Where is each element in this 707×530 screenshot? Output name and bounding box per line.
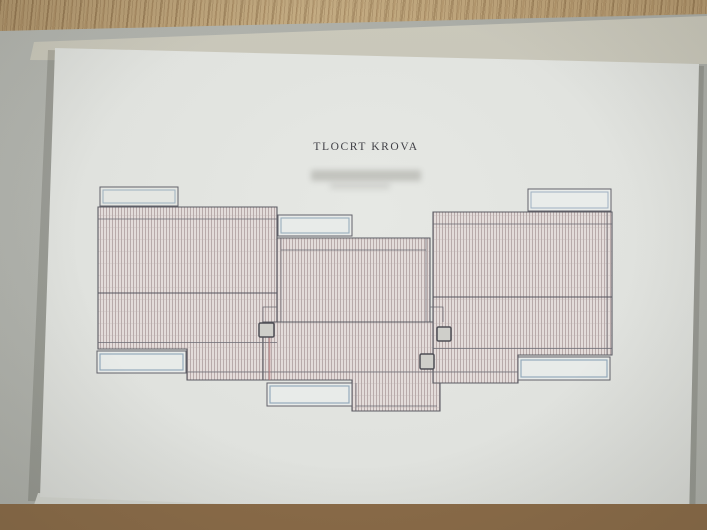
bleed-through-text-2	[330, 183, 390, 189]
roof-plan-drawing	[0, 0, 707, 530]
bleed-through-text	[311, 170, 421, 181]
drawing-title: TLOCRT KROVA	[313, 141, 418, 153]
chimney-right	[437, 327, 451, 341]
skylight-top-left	[100, 187, 178, 206]
skylight-top-middle	[278, 215, 352, 236]
skylight-top-right	[528, 189, 611, 211]
skylight-bottom-right	[518, 357, 610, 380]
photo-of-roof-plan: TLOCRT KROVA	[0, 0, 707, 530]
skylight-bottom-middle	[267, 383, 352, 406]
chimney-center	[420, 354, 434, 369]
skylight-bottom-left	[97, 351, 186, 373]
middle-roof-section	[277, 238, 430, 322]
chimney-left	[259, 323, 274, 337]
